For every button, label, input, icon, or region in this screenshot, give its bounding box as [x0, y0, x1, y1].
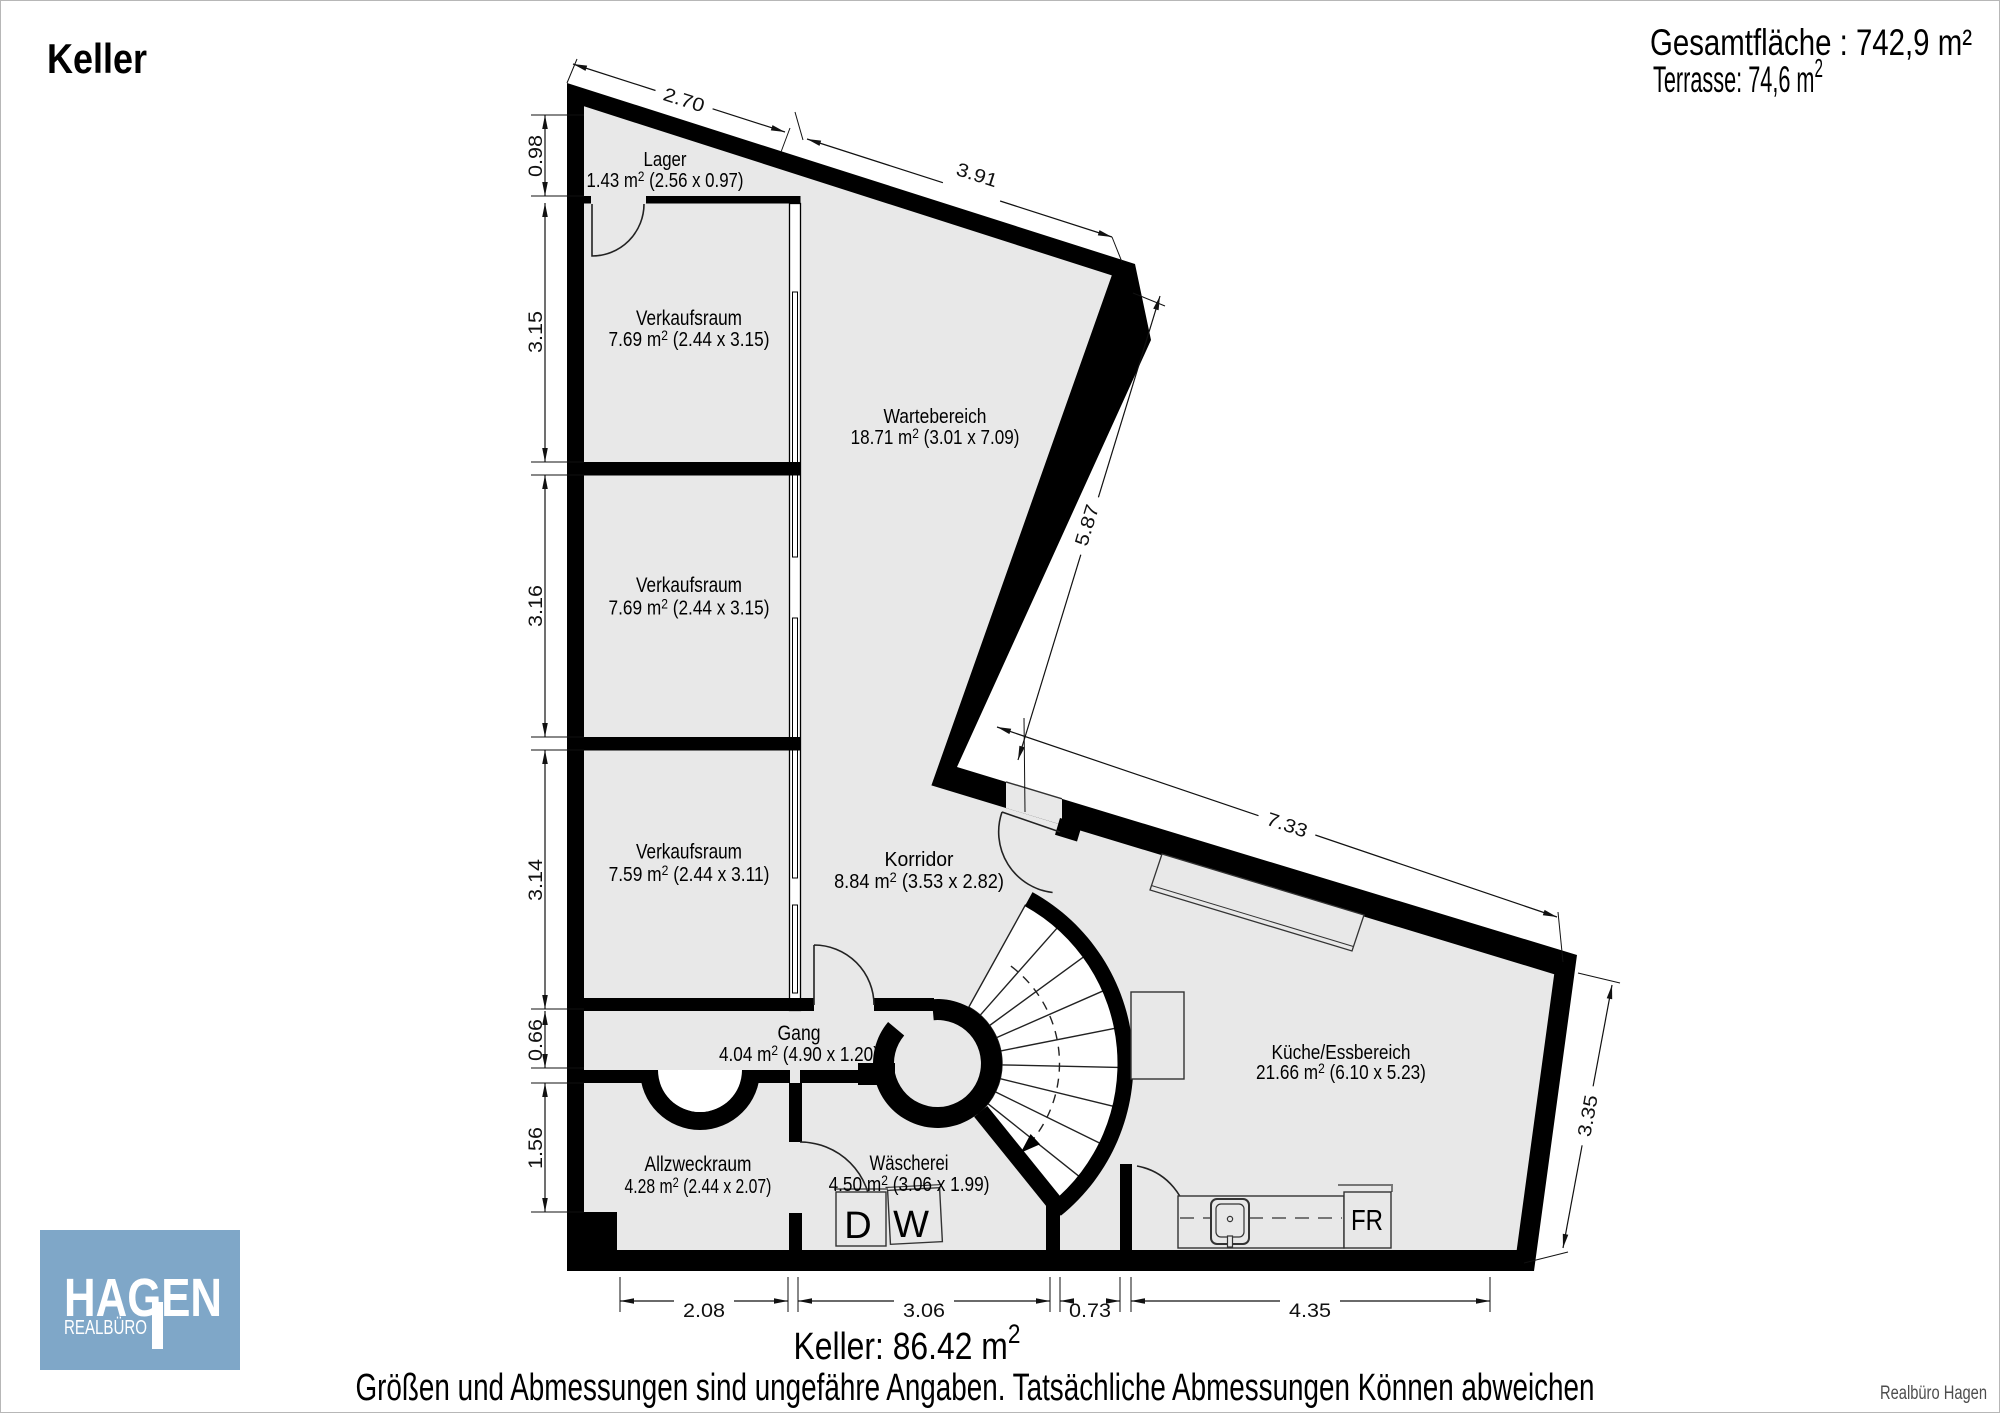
- svg-text:3.15: 3.15: [526, 311, 547, 353]
- svg-text:Keller: Keller: [47, 35, 147, 82]
- svg-text:4.28 m2 (2.44 x 2.07): 4.28 m2 (2.44 x 2.07): [625, 1175, 772, 1198]
- svg-text:Terrasse: 74,6 m2: Terrasse: 74,6 m2: [1653, 54, 1823, 101]
- svg-text:FR: FR: [1351, 1205, 1383, 1237]
- svg-text:Keller: 86.42 m2: Keller: 86.42 m2: [794, 1319, 1021, 1368]
- svg-text:21.66 m2 (6.10 x 5.23): 21.66 m2 (6.10 x 5.23): [1256, 1060, 1426, 1083]
- svg-text:REALBÜRO: REALBÜRO: [64, 1317, 147, 1339]
- svg-text:3.06: 3.06: [903, 1301, 945, 1322]
- svg-text:0.66: 0.66: [526, 1019, 547, 1061]
- svg-text:18.71 m2 (3.01 x 7.09): 18.71 m2 (3.01 x 7.09): [851, 425, 1020, 448]
- svg-text:Allzweckraum: Allzweckraum: [645, 1153, 752, 1176]
- svg-text:Realbüro Hagen: Realbüro Hagen: [1880, 1383, 1987, 1404]
- svg-text:2.08: 2.08: [683, 1301, 725, 1322]
- svg-text:4.35: 4.35: [1289, 1301, 1331, 1322]
- svg-text:1.43 m2 (2.56 x 0.97): 1.43 m2 (2.56 x 0.97): [587, 168, 744, 191]
- svg-text:4.50 m2 (3.06 x 1.99): 4.50 m2 (3.06 x 1.99): [829, 1172, 990, 1195]
- svg-text:Wartebereich: Wartebereich: [884, 406, 987, 428]
- svg-text:0.73: 0.73: [1069, 1301, 1111, 1322]
- svg-text:Gang: Gang: [778, 1022, 821, 1045]
- svg-text:Gesamtfläche : 742,9 m²: Gesamtfläche : 742,9 m²: [1650, 22, 1972, 63]
- svg-text:Verkaufsraum: Verkaufsraum: [636, 307, 742, 330]
- svg-text:Korridor: Korridor: [885, 849, 954, 871]
- svg-text:3.16: 3.16: [526, 585, 547, 627]
- svg-text:Verkaufsraum: Verkaufsraum: [636, 574, 742, 597]
- svg-text:1.56: 1.56: [526, 1127, 547, 1169]
- svg-text:4.04 m2 (4.90 x 1.20): 4.04 m2 (4.90 x 1.20): [719, 1042, 879, 1065]
- svg-text:8.84 m2 (3.53 x 2.82): 8.84 m2 (3.53 x 2.82): [834, 869, 1004, 893]
- svg-text:0.98: 0.98: [526, 135, 547, 177]
- svg-text:Verkaufsraum: Verkaufsraum: [636, 841, 742, 864]
- svg-text:7.59 m2 (2.44 x 3.11): 7.59 m2 (2.44 x 3.11): [609, 862, 770, 885]
- svg-text:W: W: [893, 1204, 929, 1246]
- svg-text:3.14: 3.14: [526, 859, 547, 901]
- svg-text:D: D: [844, 1205, 871, 1247]
- svg-text:7.69 m2 (2.44 x 3.15): 7.69 m2 (2.44 x 3.15): [609, 596, 770, 619]
- svg-text:7.69 m2 (2.44 x 3.15): 7.69 m2 (2.44 x 3.15): [609, 327, 770, 350]
- svg-text:Größen und Abmessungen sind un: Größen und Abmessungen sind ungefähre An…: [356, 1367, 1595, 1409]
